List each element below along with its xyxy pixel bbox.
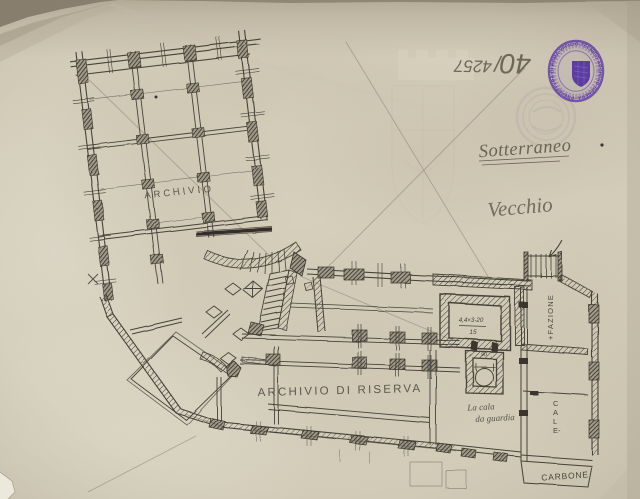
svg-text:4,4×3-20: 4,4×3-20 (459, 317, 484, 324)
svg-text:E-: E- (553, 426, 561, 435)
svg-text:C: C (553, 399, 559, 408)
svg-text:15: 15 (469, 329, 477, 336)
svg-text:La cala: La cala (466, 401, 495, 412)
svg-text:+FAZIONE: +FAZIONE (546, 294, 555, 340)
svg-text:4257: 4257 (454, 56, 493, 76)
svg-text:da guardia: da guardia (475, 412, 515, 424)
svg-text:90: 90 (481, 352, 488, 358)
svg-text:40: 40 (499, 48, 531, 80)
svg-text:A: A (553, 408, 558, 417)
svg-text:L: L (553, 417, 557, 426)
